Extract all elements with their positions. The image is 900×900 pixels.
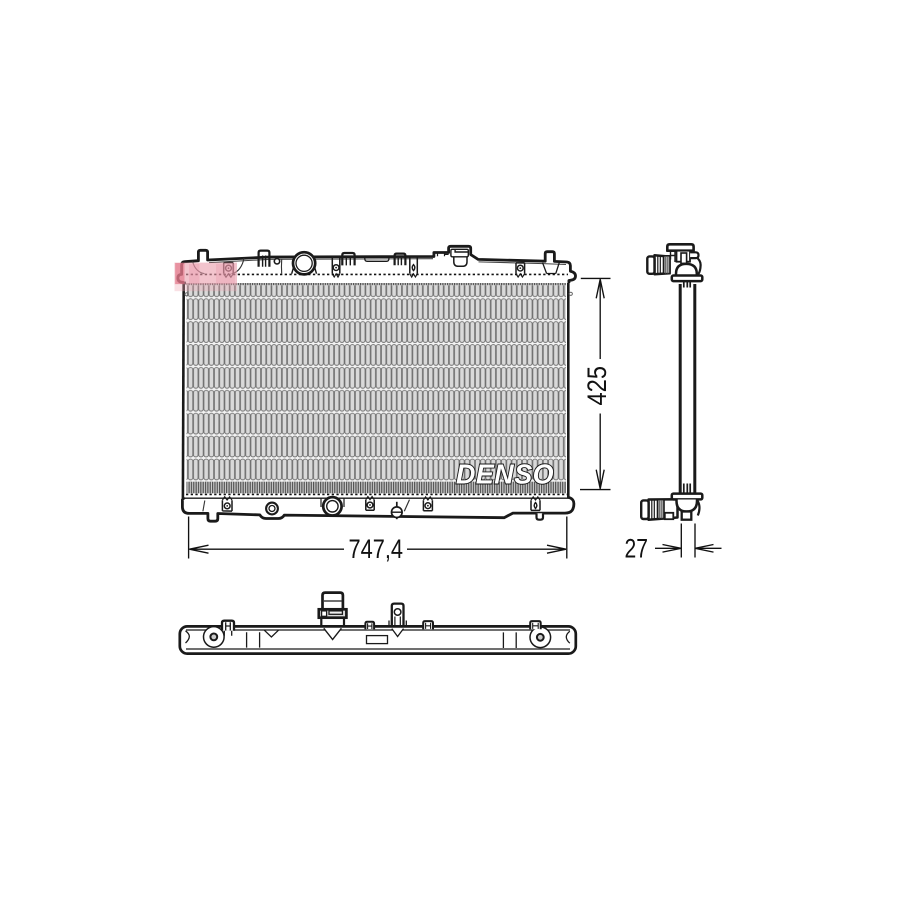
svg-text:425: 425 <box>582 366 612 406</box>
svg-text:DENSO: DENSO <box>456 459 554 490</box>
svg-text:27: 27 <box>625 533 649 563</box>
svg-text:747,4: 747,4 <box>349 534 404 564</box>
